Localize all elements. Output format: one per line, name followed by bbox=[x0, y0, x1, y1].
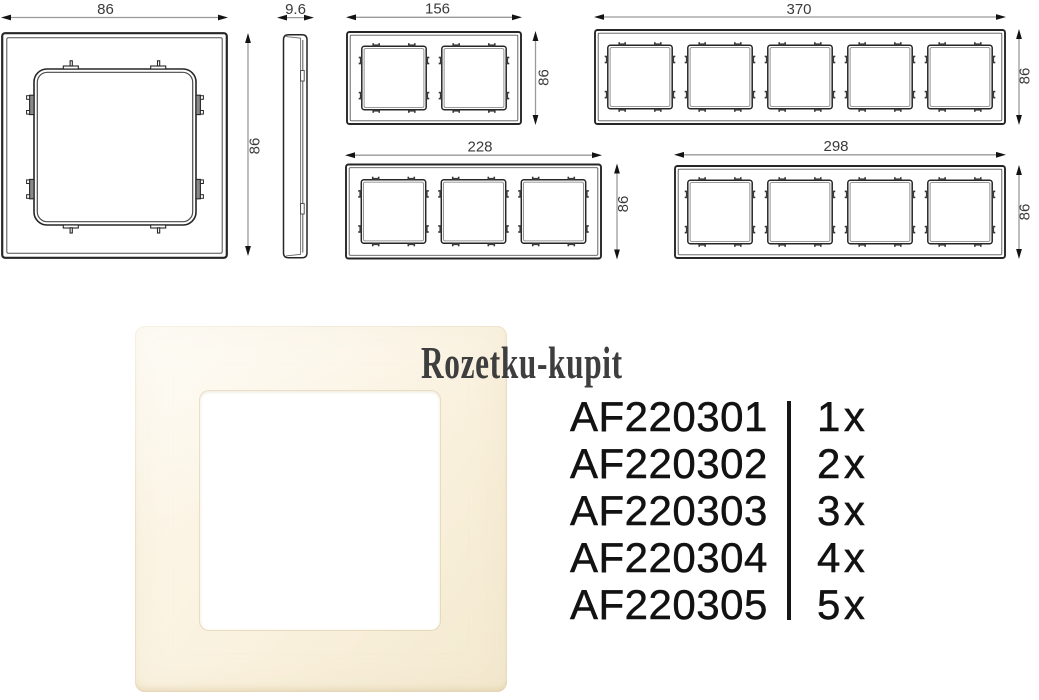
svg-text:298: 298 bbox=[823, 138, 848, 155]
svg-text:370: 370 bbox=[786, 1, 811, 18]
svg-text:156: 156 bbox=[425, 1, 450, 18]
svg-text:86: 86 bbox=[1017, 68, 1034, 85]
svg-text:86: 86 bbox=[97, 1, 114, 18]
svg-text:86: 86 bbox=[615, 196, 632, 213]
svg-text:86: 86 bbox=[247, 138, 264, 155]
svg-text:9.6: 9.6 bbox=[285, 1, 306, 18]
svg-text:86: 86 bbox=[536, 69, 553, 86]
svg-text:228: 228 bbox=[467, 139, 492, 156]
svg-text:86: 86 bbox=[1017, 204, 1034, 221]
